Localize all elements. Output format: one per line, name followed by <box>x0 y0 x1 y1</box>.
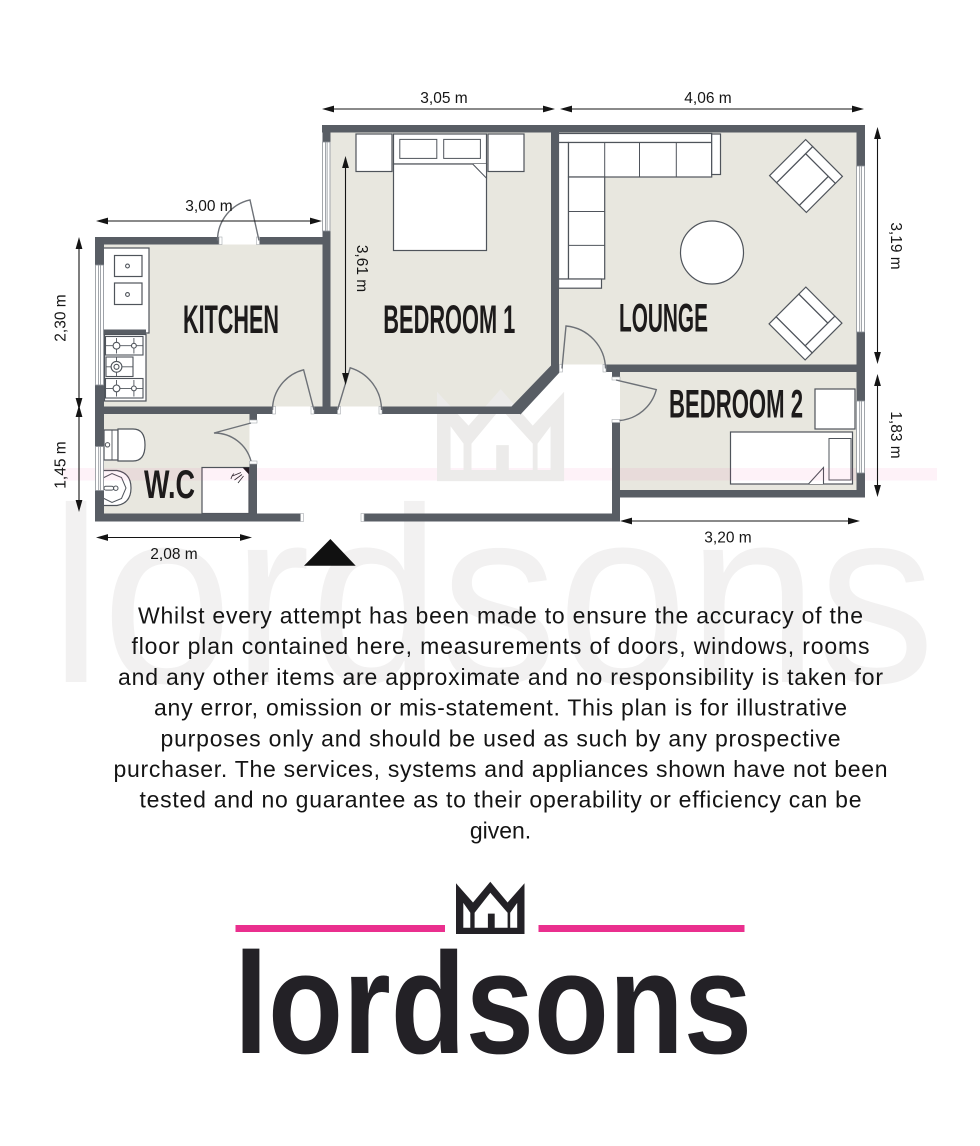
svg-text:floor plan contained here, mea: floor plan contained here, measurements … <box>132 633 870 659</box>
svg-text:W.C: W.C <box>144 463 195 507</box>
svg-text:and any other items are approx: and any other items are approximate and … <box>118 664 883 690</box>
svg-text:Whilst every attempt has been: Whilst every attempt has been made to en… <box>138 603 863 629</box>
svg-text:BEDROOM 2: BEDROOM 2 <box>669 383 803 427</box>
svg-text:1,83 m: 1,83 m <box>887 411 904 458</box>
svg-text:2,30 m: 2,30 m <box>53 294 70 341</box>
svg-text:lordsons: lordsons <box>234 923 752 1084</box>
svg-text:KITCHEN: KITCHEN <box>183 298 279 342</box>
svg-text:LOUNGE: LOUNGE <box>619 297 708 341</box>
svg-text:tested and no guarantee as to: tested and no guarantee as to their oper… <box>140 787 862 813</box>
svg-text:3,61 m: 3,61 m <box>353 245 370 292</box>
svg-text:3,19 m: 3,19 m <box>887 222 904 269</box>
svg-text:2,08 m: 2,08 m <box>150 546 197 563</box>
svg-text:4,06 m: 4,06 m <box>684 90 731 107</box>
svg-text:3,05 m: 3,05 m <box>420 90 467 107</box>
svg-text:given.: given. <box>470 817 531 843</box>
svg-text:purposes only and should be us: purposes only and should be used as such… <box>161 725 841 751</box>
svg-text:BEDROOM 1: BEDROOM 1 <box>383 298 515 342</box>
svg-text:3,20 m: 3,20 m <box>704 530 751 547</box>
svg-text:any error, omission or mis-sta: any error, omission or mis-statement. Th… <box>154 695 847 721</box>
svg-text:3,00 m: 3,00 m <box>185 198 232 215</box>
svg-text:purchaser. The services, syste: purchaser. The services, systems and app… <box>114 756 888 782</box>
svg-text:1,45 m: 1,45 m <box>53 441 70 488</box>
